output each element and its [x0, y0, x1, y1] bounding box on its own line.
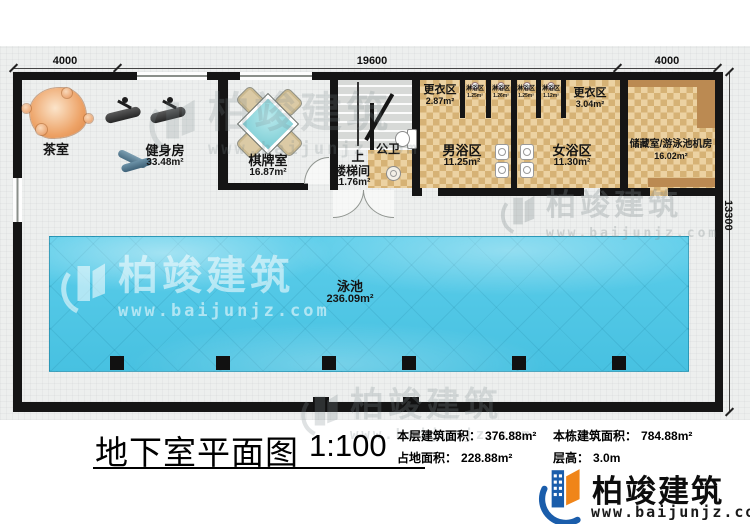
- column: [402, 356, 416, 370]
- room-area-change1: 2.87m²: [426, 97, 455, 106]
- shower-fixture-icon: [520, 162, 534, 178]
- treadmill-icon: [103, 96, 145, 130]
- floorplan-page: 4000 19600 4000 13300 茶室 健身房 33.48m² 棋牌室…: [0, 0, 750, 531]
- room-area-shower3: 1.25m²: [518, 94, 534, 99]
- room-area-change2: 3.04m²: [576, 100, 605, 109]
- column: [110, 356, 124, 370]
- stat-floor-area: 本层建筑面积：376.88m²: [397, 427, 536, 444]
- stair-up-arrow: [357, 82, 359, 146]
- wall: [13, 402, 723, 412]
- room-label-shower1: 淋浴区: [466, 86, 484, 92]
- window: [137, 72, 207, 80]
- wall: [620, 72, 628, 196]
- room-label-storage: 储藏室/游泳池机房: [630, 140, 713, 150]
- stat-label: 本层建筑面积：: [397, 429, 481, 443]
- room-label-stair: 楼梯间: [334, 165, 370, 177]
- column: [512, 356, 526, 370]
- wall: [438, 188, 584, 196]
- column: [612, 356, 626, 370]
- room-label-shower4: 淋浴区: [542, 86, 560, 92]
- title-underline: [93, 467, 425, 469]
- wall: [218, 72, 228, 190]
- room-area-shower2: 1.26m²: [493, 94, 509, 99]
- room-label-change2: 更衣区: [574, 88, 607, 99]
- shower-partition: [460, 80, 465, 118]
- stat-label: 本栋建筑面积：: [553, 429, 637, 443]
- room-area-gym: 33.48m²: [146, 158, 183, 168]
- dimension-label: 4000: [655, 55, 679, 67]
- dimension-label: 19600: [357, 55, 388, 67]
- dimension-line: [729, 72, 730, 412]
- stat-building-area: 本栋建筑面积：784.88m²: [553, 427, 692, 444]
- floor-drain-icon: [386, 166, 401, 181]
- shower-fixture-icon: [495, 162, 509, 178]
- storage-shelf-block: [697, 80, 715, 128]
- treadmill-icon: [148, 96, 190, 130]
- room-label-male-bath: 男浴区: [442, 144, 481, 157]
- storage-shelf-strip: [628, 80, 700, 87]
- storage-shelf-strip: [648, 178, 715, 187]
- room-area-shower1: 1.25m²: [467, 94, 483, 99]
- shower-partition: [486, 80, 491, 118]
- room-label-change1: 更衣区: [424, 85, 457, 96]
- wall: [218, 183, 308, 190]
- window: [13, 178, 22, 222]
- room-label-toilet: 公卫: [376, 143, 400, 155]
- stat-label: 占地面积：: [397, 451, 457, 465]
- shower-fixture-icon: [520, 144, 534, 160]
- room-area-male-bath: 11.25m²: [444, 158, 481, 168]
- stat-value: 784.88m²: [641, 429, 692, 443]
- drawing-scale: 1:100: [309, 428, 387, 464]
- stat-footprint-area: 占地面积：228.88m²: [397, 449, 512, 466]
- wall: [668, 188, 723, 196]
- stair-direction-label: 上: [351, 150, 364, 163]
- pebble: [62, 88, 72, 98]
- column: [216, 356, 230, 370]
- room-area-shower4: 1.12m²: [543, 94, 559, 99]
- room-label-shower3: 淋浴区: [517, 86, 535, 92]
- pebble: [36, 124, 47, 135]
- room-label-tea: 茶室: [43, 143, 69, 156]
- column: [313, 397, 329, 412]
- room-area-storage: 16.02m²: [654, 152, 688, 161]
- stat-value: 3.0m: [593, 451, 620, 465]
- room-label-gym: 健身房: [145, 144, 184, 157]
- stat-value: 228.88m²: [461, 451, 512, 465]
- stat-value: 376.88m²: [485, 429, 536, 443]
- column: [322, 356, 336, 370]
- wall: [13, 222, 22, 412]
- room-label-female-bath: 女浴区: [552, 144, 591, 157]
- pebble: [22, 104, 31, 113]
- pebble: [84, 114, 93, 123]
- brand-logo-icon: [534, 464, 590, 529]
- room-label-shower2: 淋浴区: [492, 86, 510, 92]
- room-label-chess: 棋牌室: [248, 154, 287, 167]
- shower-partition: [561, 80, 566, 118]
- dimension-label: 13300: [722, 200, 734, 231]
- wall: [412, 188, 422, 196]
- wall: [13, 72, 22, 178]
- brand-url: www.baijunjz.com: [591, 503, 750, 521]
- wall: [312, 72, 723, 80]
- dimension-label: 4000: [53, 55, 77, 67]
- column: [403, 397, 419, 412]
- wall: [13, 72, 137, 80]
- wall: [715, 72, 723, 412]
- shower-partition: [536, 80, 541, 118]
- room-label-pool: 泳池: [337, 280, 363, 293]
- window: [240, 72, 312, 80]
- room-area-pool: 236.09m²: [326, 294, 373, 305]
- wall: [600, 188, 650, 196]
- shower-fixture-icon: [495, 144, 509, 160]
- room-area-female-bath: 11.30m²: [554, 158, 591, 168]
- room-area-stair: 11.76m²: [334, 178, 371, 188]
- room-area-chess: 16.87m²: [249, 168, 286, 178]
- stat-label: 层高：: [553, 451, 589, 465]
